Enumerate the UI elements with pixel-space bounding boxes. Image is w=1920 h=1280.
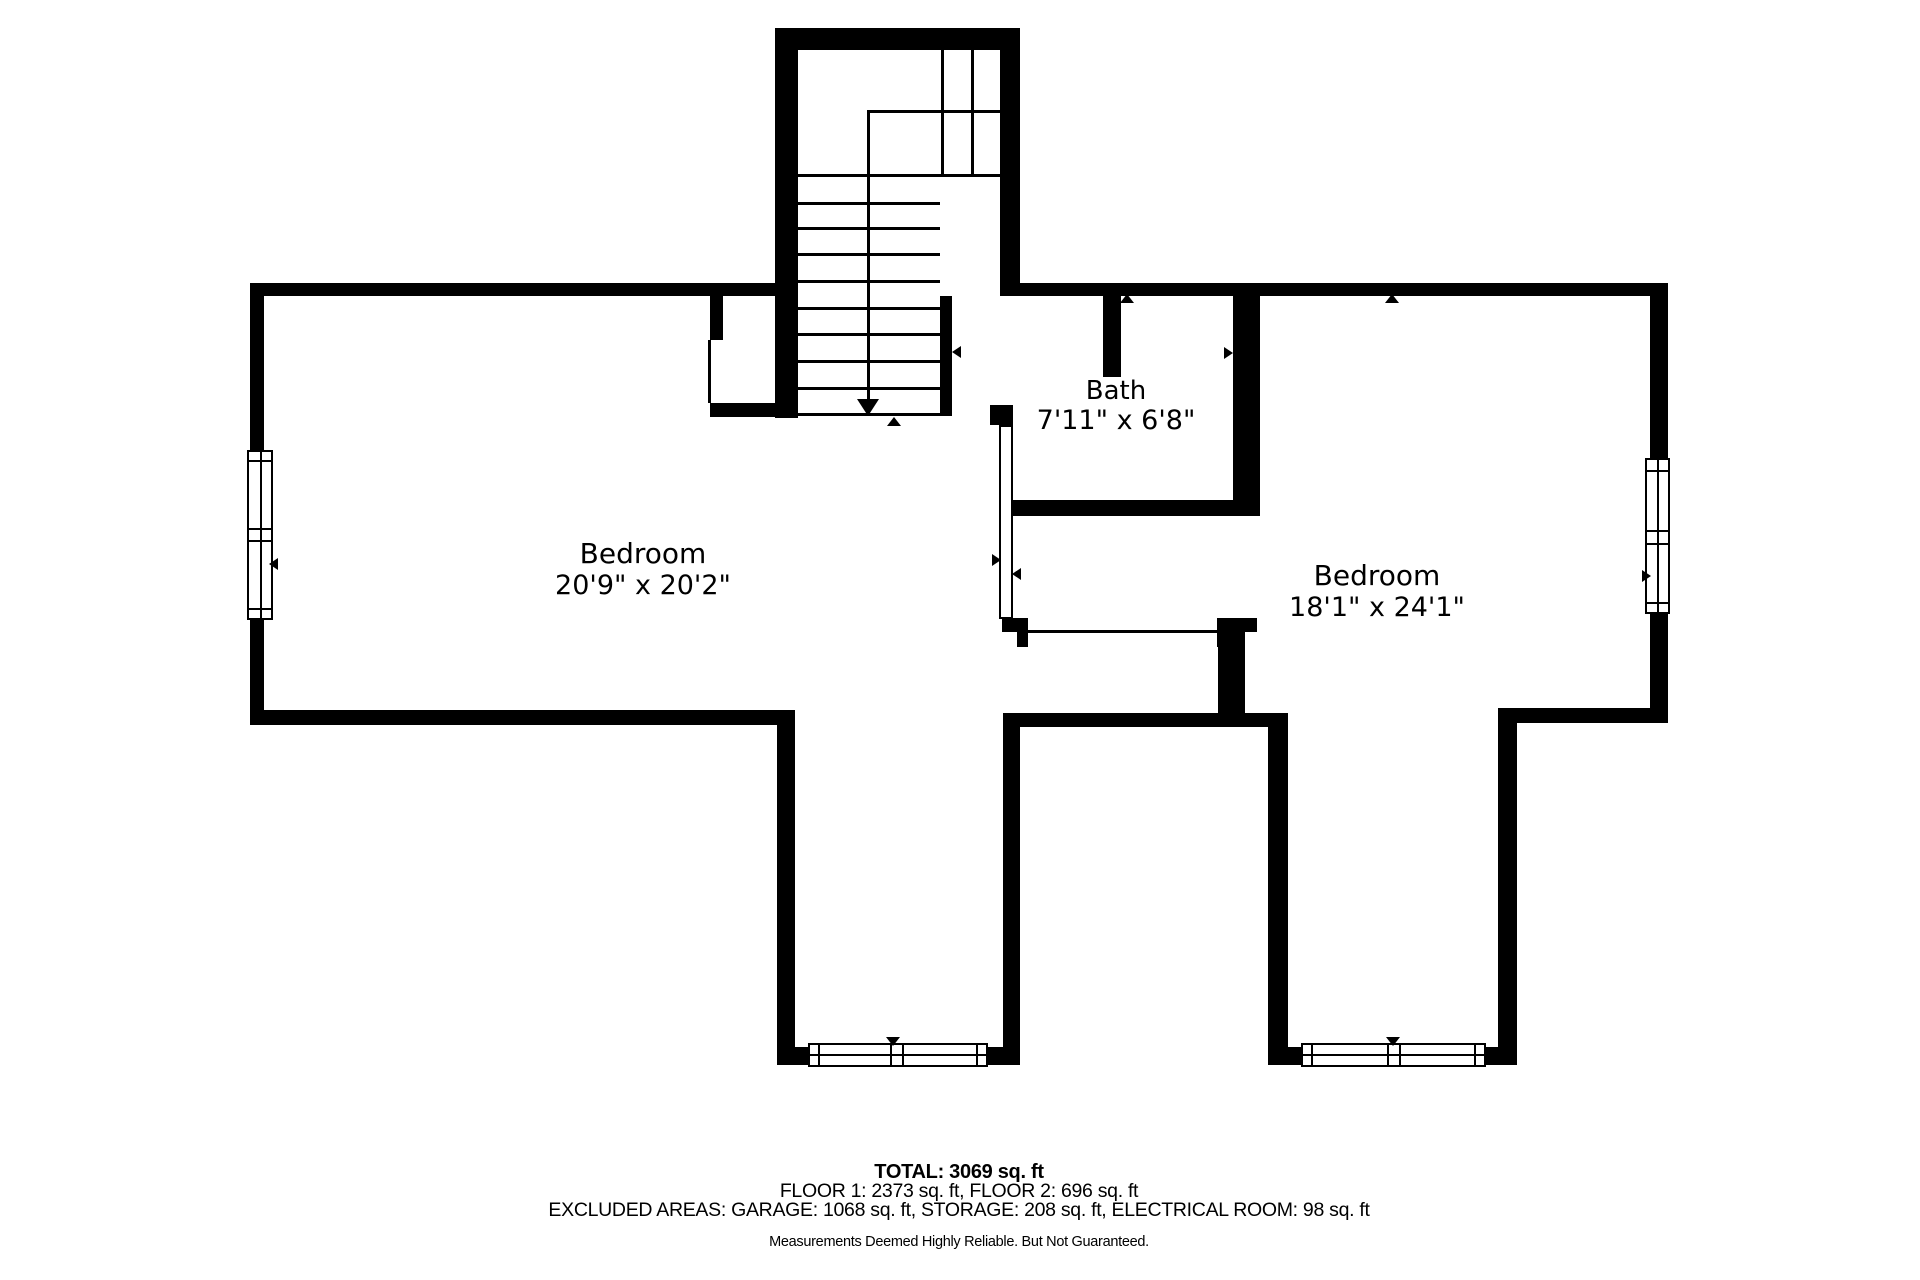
wall-hall-stub	[990, 405, 1013, 425]
wall-wing-left-east	[1003, 713, 1020, 1065]
floor-plan: Bedroom 20'9" x 20'2" Bedroom 18'1" x 24…	[0, 0, 1920, 1280]
arrow-stair-opening-icon	[952, 346, 961, 358]
wall-bedroom-right-bottom	[1498, 708, 1668, 723]
nook-door-line	[708, 340, 711, 403]
marker-bath-door-icon	[1118, 501, 1132, 510]
stair-tread-5	[798, 280, 940, 283]
wall-left-upper	[250, 283, 264, 450]
stair-landing-line	[867, 110, 1002, 113]
stair-tread-8	[798, 360, 940, 363]
marker-bedroom-top-icon	[1385, 294, 1399, 303]
wall-wing-left-bottom-b	[988, 1047, 1020, 1065]
window-wing-left	[808, 1043, 988, 1067]
marker-bath-top-icon	[1120, 294, 1134, 303]
wall-stair-bath-divider	[940, 296, 952, 415]
room-name: Bedroom	[1289, 560, 1465, 592]
closet-opening-line	[1028, 630, 1217, 633]
stair-tread-2	[798, 202, 940, 205]
wall-closet-left-tooth	[1017, 618, 1028, 647]
room-dimensions: 20'9" x 20'2"	[555, 570, 731, 602]
stair-center-line	[867, 110, 870, 402]
wall-middle-bottom	[1003, 713, 1288, 727]
stair-entry-marker	[887, 417, 901, 426]
stair-tread-1	[798, 174, 1002, 177]
excluded-areas-text: EXCLUDED AREAS: GARAGE: 1068 sq. ft, STO…	[259, 1201, 1659, 1220]
room-label-bath: Bath 7'11" x 6'8"	[1037, 376, 1196, 436]
room-name: Bath	[1037, 376, 1196, 406]
hall-door-leaf	[999, 425, 1013, 619]
arrow-bath-opening-icon	[1224, 347, 1233, 359]
arrow-hall-door-left-icon	[1012, 568, 1021, 580]
wall-wing-right-west	[1268, 713, 1288, 1065]
wall-bedroom-left-bottom	[250, 710, 795, 725]
wall-nook-bottom	[710, 403, 795, 417]
wall-wing-left-bottom-a	[777, 1047, 808, 1065]
wall-right-upper	[1650, 283, 1668, 460]
stair-tread-9	[798, 387, 940, 390]
wall-closet-stub-down	[1218, 632, 1245, 713]
arrow-left-icon	[269, 558, 278, 570]
wall-stair-tower-top	[775, 28, 1020, 50]
wall-bath-partition-stub	[1103, 296, 1121, 377]
wall-stair-tower-left	[775, 28, 798, 418]
stair-tread-3	[798, 227, 940, 230]
room-name: Bedroom	[555, 538, 731, 570]
room-dimensions: 7'11" x 6'8"	[1037, 406, 1196, 436]
stair-tread-4	[798, 253, 940, 256]
stair-tread-7	[798, 333, 940, 336]
wall-stair-tower-right	[1000, 28, 1020, 296]
stair-upper-rail-line-2	[971, 50, 974, 176]
wall-wing-left-west	[777, 710, 795, 1065]
area-summary: TOTAL: 3069 sq. ft FLOOR 1: 2373 sq. ft,…	[259, 1163, 1659, 1250]
arrow-hall-door-right-icon	[992, 554, 1001, 566]
marker-wing-left-window-icon	[886, 1037, 900, 1046]
wall-wing-right-east	[1498, 708, 1517, 1065]
wall-nook-stub	[710, 296, 723, 340]
marker-wing-right-window-icon	[1386, 1037, 1400, 1046]
wall-right-lower	[1650, 612, 1668, 723]
window-right-wall	[1645, 458, 1670, 614]
wall-top-right-segment	[1020, 283, 1668, 296]
stair-bottom-line	[795, 413, 952, 416]
disclaimer-text: Measurements Deemed Highly Reliable. But…	[259, 1234, 1659, 1250]
wall-wing-right-bottom-a	[1268, 1047, 1301, 1065]
window-left-wall	[247, 450, 273, 620]
window-wing-right	[1301, 1043, 1486, 1067]
room-label-bedroom-right: Bedroom 18'1" x 24'1"	[1289, 560, 1465, 624]
stair-tread-6	[798, 307, 940, 310]
wall-bath-right	[1233, 283, 1260, 516]
room-label-bedroom-left: Bedroom 20'9" x 20'2"	[555, 538, 731, 602]
arrow-right-icon	[1642, 570, 1651, 582]
wall-wing-right-bottom-b	[1486, 1047, 1517, 1065]
stair-upper-rail-line-1	[941, 50, 944, 176]
room-dimensions: 18'1" x 24'1"	[1289, 592, 1465, 624]
wall-top-left-segment	[250, 283, 775, 296]
